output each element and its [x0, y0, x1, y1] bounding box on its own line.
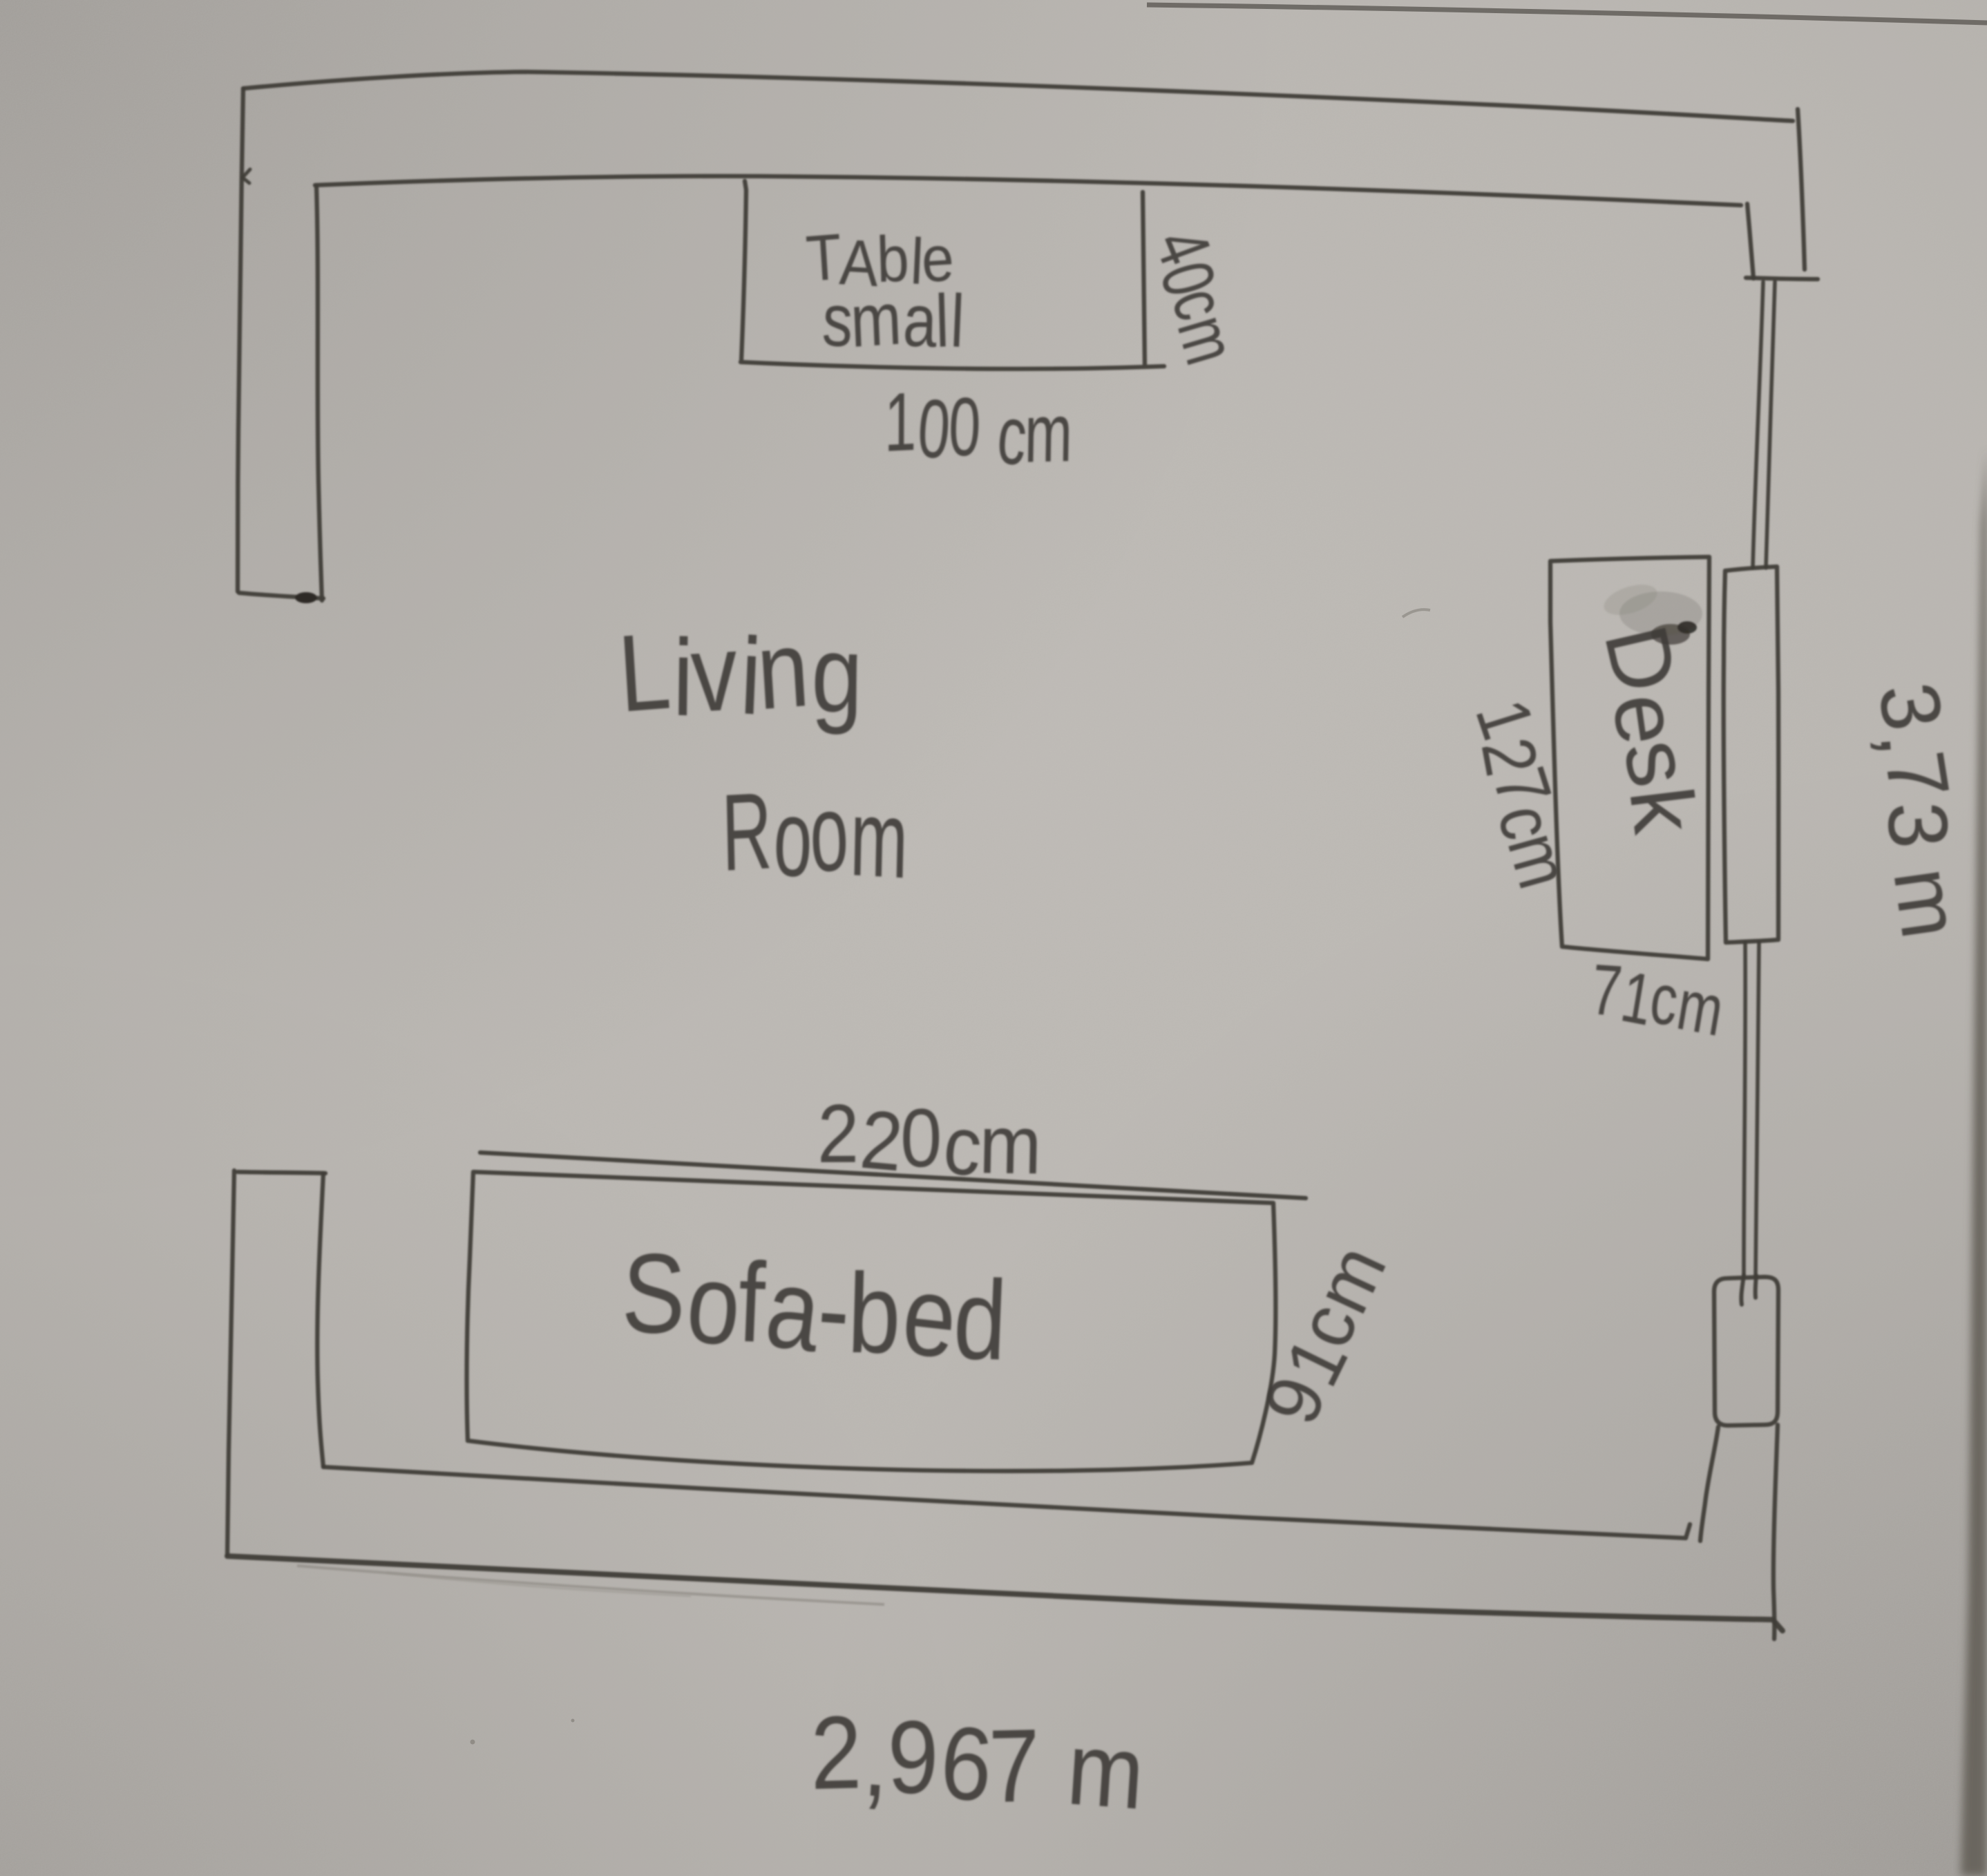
svg-text:small: small — [821, 276, 967, 363]
svg-text:100 cm: 100 cm — [878, 375, 1077, 486]
svg-text:2,967 m: 2,967 m — [805, 1692, 1148, 1831]
svg-text:Room: Room — [719, 771, 911, 900]
